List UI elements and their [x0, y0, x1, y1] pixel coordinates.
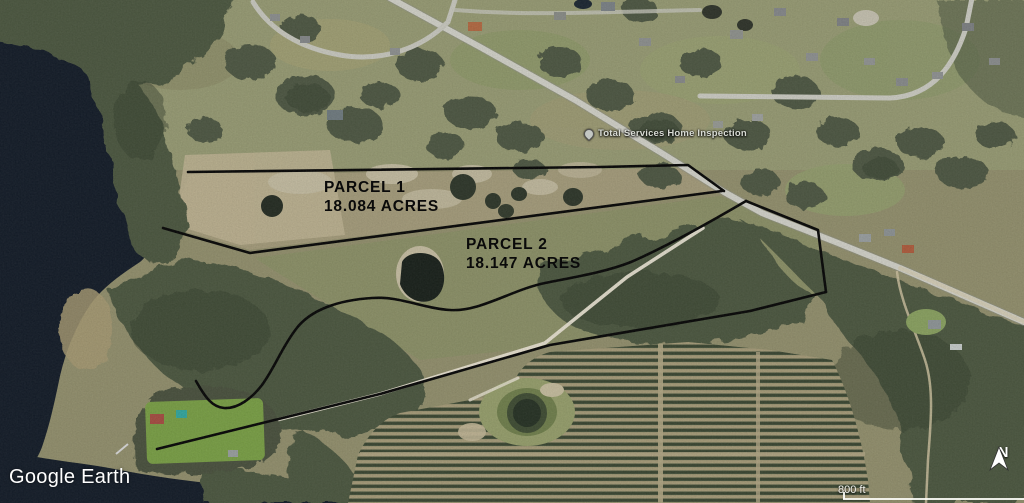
- poi-label-text: Total Services Home Inspection: [598, 128, 747, 139]
- north-indicator[interactable]: N: [988, 446, 1018, 461]
- parcel2-acreage: 18.147 ACRES: [466, 254, 581, 273]
- parcel1-name: PARCEL 1: [324, 178, 439, 197]
- parcel1-acreage: 18.084 ACRES: [324, 197, 439, 216]
- poi-marker[interactable]: Total Services Home Inspection: [584, 128, 747, 139]
- north-arrow-icon: [988, 446, 1010, 472]
- google-earth-viewport[interactable]: PARCEL 1 18.084 ACRES PARCEL 2 18.147 AC…: [0, 0, 1024, 503]
- parcel1-label: PARCEL 1 18.084 ACRES: [324, 178, 439, 216]
- google-earth-watermark: Google Earth: [9, 466, 130, 489]
- parcel2-label: PARCEL 2 18.147 ACRES: [466, 235, 581, 273]
- parcel2-name: PARCEL 2: [466, 235, 581, 254]
- scale-bar-tick: [843, 492, 845, 499]
- scale-bar: [843, 498, 1024, 500]
- place-pin-icon: [582, 126, 596, 140]
